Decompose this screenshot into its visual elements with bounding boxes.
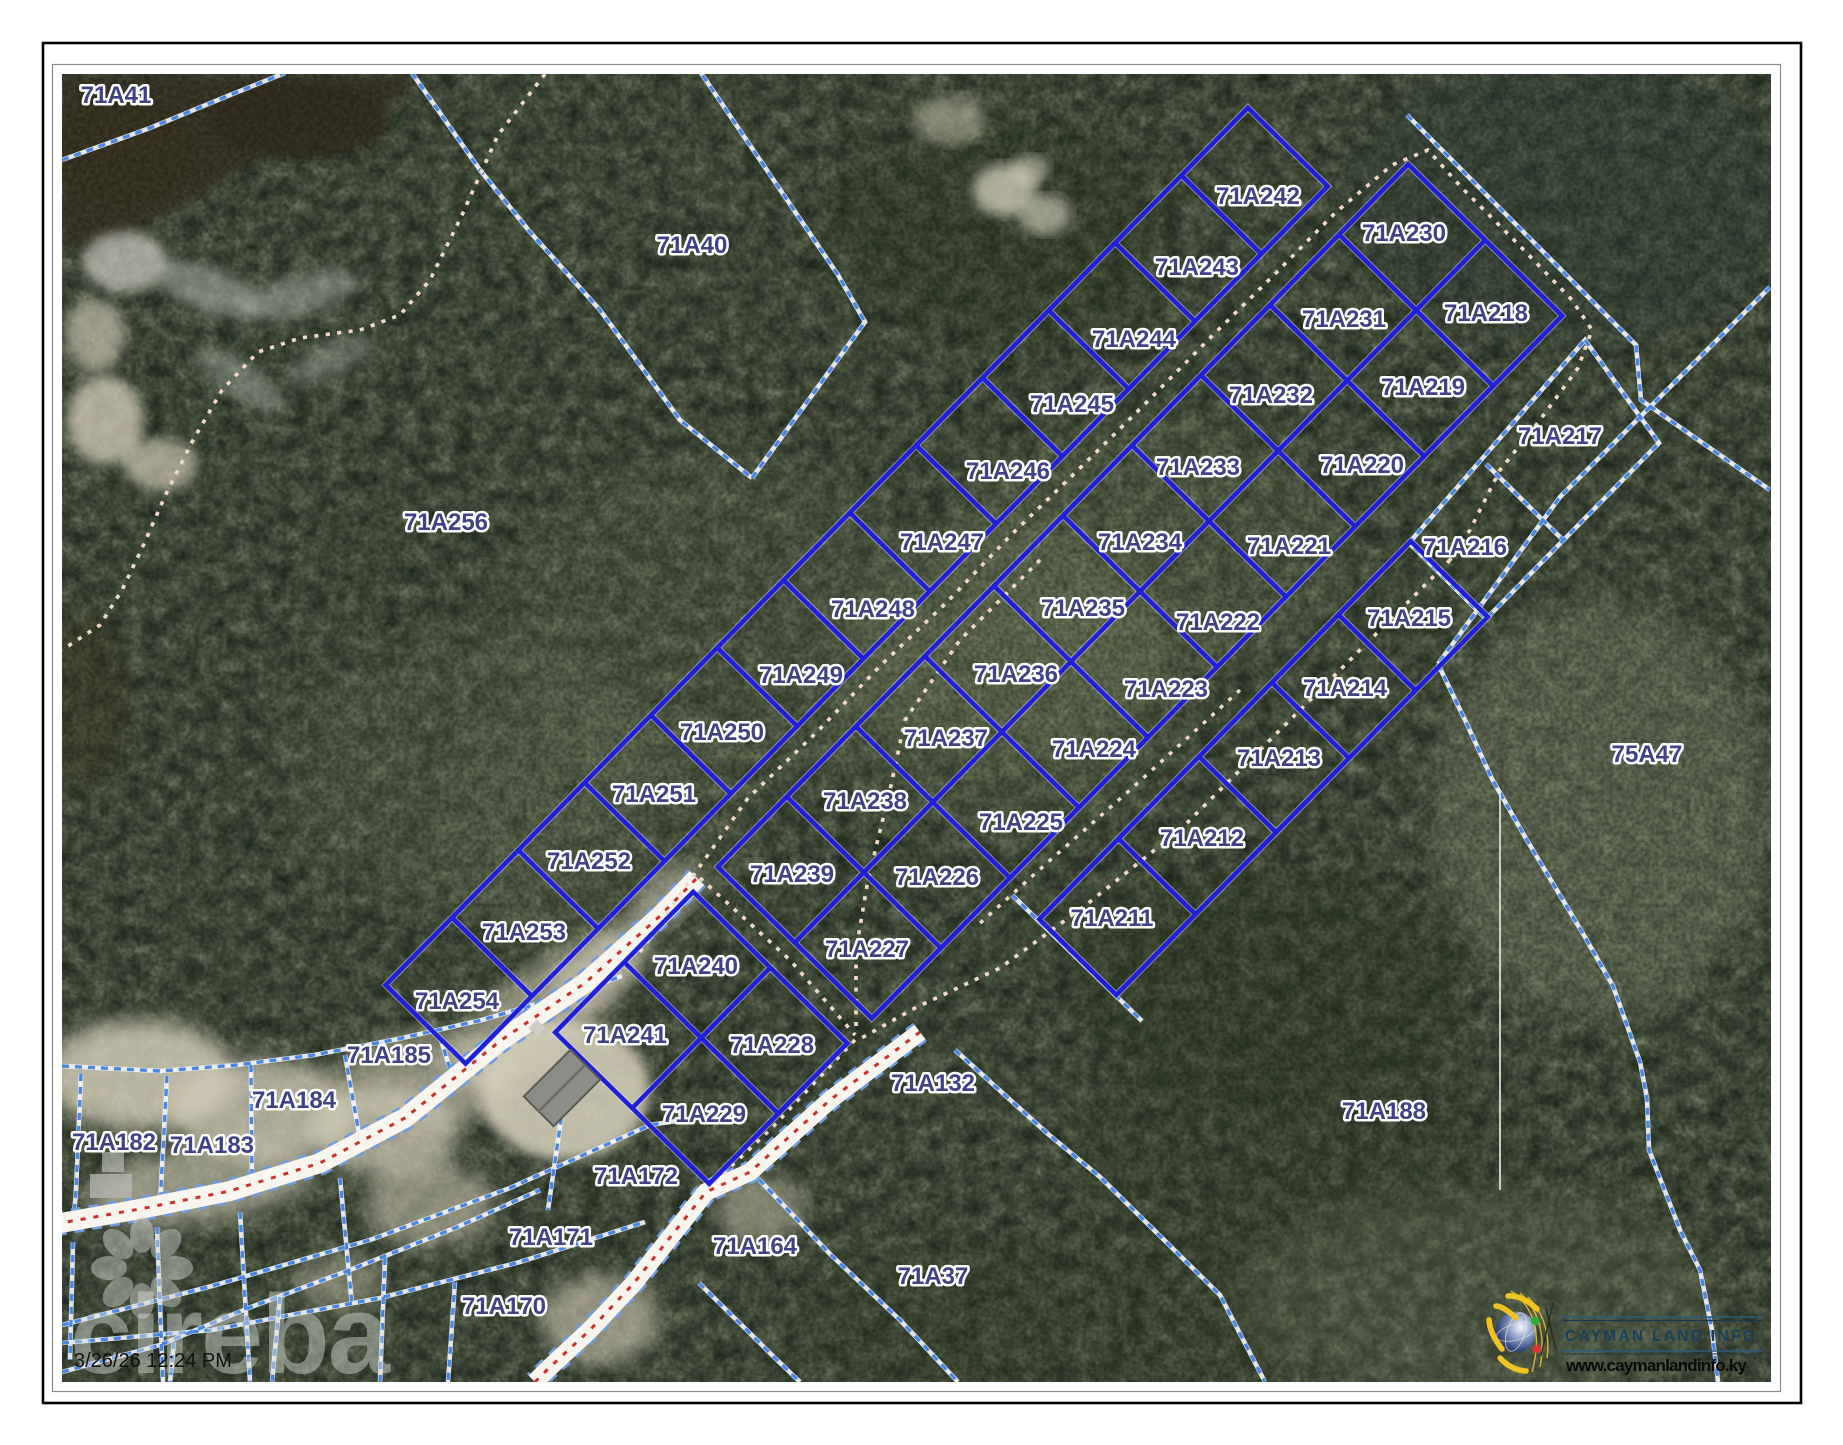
svg-text:71A40: 71A40 <box>657 232 728 259</box>
svg-text:71A235: 71A235 <box>1041 595 1125 622</box>
svg-text:71A251: 71A251 <box>612 781 696 808</box>
svg-text:71A188: 71A188 <box>1342 1098 1426 1125</box>
svg-text:71A244: 71A244 <box>1092 326 1177 353</box>
svg-text:71A230: 71A230 <box>1362 220 1446 247</box>
svg-text:3/26/26 12:24 PM: 3/26/26 12:24 PM <box>74 1350 232 1372</box>
svg-text:71A170: 71A170 <box>462 1293 546 1320</box>
svg-text:71A253: 71A253 <box>482 919 566 946</box>
svg-text:71A213: 71A213 <box>1237 745 1321 772</box>
svg-text:71A247: 71A247 <box>900 529 984 556</box>
svg-text:71A132: 71A132 <box>891 1070 975 1097</box>
svg-text:71A172: 71A172 <box>594 1163 678 1190</box>
svg-text:71A250: 71A250 <box>680 719 764 746</box>
svg-text:71A225: 71A225 <box>979 809 1063 836</box>
svg-text:71A252: 71A252 <box>547 848 631 875</box>
svg-text:71A226: 71A226 <box>895 864 979 891</box>
svg-text:71A245: 71A245 <box>1030 391 1114 418</box>
svg-text:71A217: 71A217 <box>1518 423 1602 450</box>
svg-text:71A218: 71A218 <box>1444 300 1528 327</box>
svg-text:71A219: 71A219 <box>1381 374 1465 401</box>
svg-text:71A212: 71A212 <box>1160 825 1244 852</box>
svg-text:71A182: 71A182 <box>72 1129 156 1156</box>
svg-text:71A223: 71A223 <box>1124 676 1208 703</box>
svg-text:71A171: 71A171 <box>509 1224 593 1251</box>
svg-text:71A233: 71A233 <box>1156 454 1240 481</box>
svg-text:71A183: 71A183 <box>170 1132 254 1159</box>
svg-text:75A47: 75A47 <box>1612 741 1683 768</box>
svg-text:71A211: 71A211 <box>1071 905 1154 932</box>
svg-text:71A231: 71A231 <box>1302 306 1386 333</box>
svg-text:71A234: 71A234 <box>1098 529 1183 556</box>
svg-text:71A248: 71A248 <box>831 596 915 623</box>
svg-text:71A240: 71A240 <box>654 953 738 980</box>
svg-text:71A236: 71A236 <box>974 661 1058 688</box>
svg-text:71A224: 71A224 <box>1052 736 1137 763</box>
svg-text:71A216: 71A216 <box>1423 534 1507 561</box>
svg-text:71A237: 71A237 <box>904 725 988 752</box>
svg-text:71A241: 71A241 <box>583 1022 667 1049</box>
svg-text:71A243: 71A243 <box>1155 254 1239 281</box>
svg-text:71A37: 71A37 <box>898 1263 969 1290</box>
svg-text:71A229: 71A229 <box>662 1101 746 1128</box>
svg-text:71A228: 71A228 <box>730 1032 814 1059</box>
svg-text:71A232: 71A232 <box>1229 382 1313 409</box>
svg-text:71A254: 71A254 <box>415 988 500 1015</box>
svg-text:71A221: 71A221 <box>1247 533 1331 560</box>
svg-text:71A227: 71A227 <box>825 936 909 963</box>
svg-text:71A185: 71A185 <box>347 1042 431 1069</box>
svg-text:CAYMAN LAND INFO: CAYMAN LAND INFO <box>1565 1328 1757 1345</box>
svg-text:71A246: 71A246 <box>966 458 1050 485</box>
svg-text:71A184: 71A184 <box>252 1087 337 1114</box>
svg-text:cireba: cireba <box>70 1272 391 1397</box>
svg-text:71A41: 71A41 <box>81 82 152 109</box>
svg-text:71A242: 71A242 <box>1216 183 1300 210</box>
svg-text:www.caymanlandinfo.ky: www.caymanlandinfo.ky <box>1565 1356 1747 1375</box>
svg-text:71A214: 71A214 <box>1303 675 1388 702</box>
svg-text:71A220: 71A220 <box>1320 452 1404 479</box>
svg-text:71A239: 71A239 <box>750 861 834 888</box>
svg-text:71A215: 71A215 <box>1367 605 1451 632</box>
svg-text:71A256: 71A256 <box>404 509 488 536</box>
svg-text:71A164: 71A164 <box>713 1233 798 1260</box>
svg-text:71A222: 71A222 <box>1176 609 1260 636</box>
svg-text:71A249: 71A249 <box>759 662 843 689</box>
svg-text:71A238: 71A238 <box>823 788 907 815</box>
